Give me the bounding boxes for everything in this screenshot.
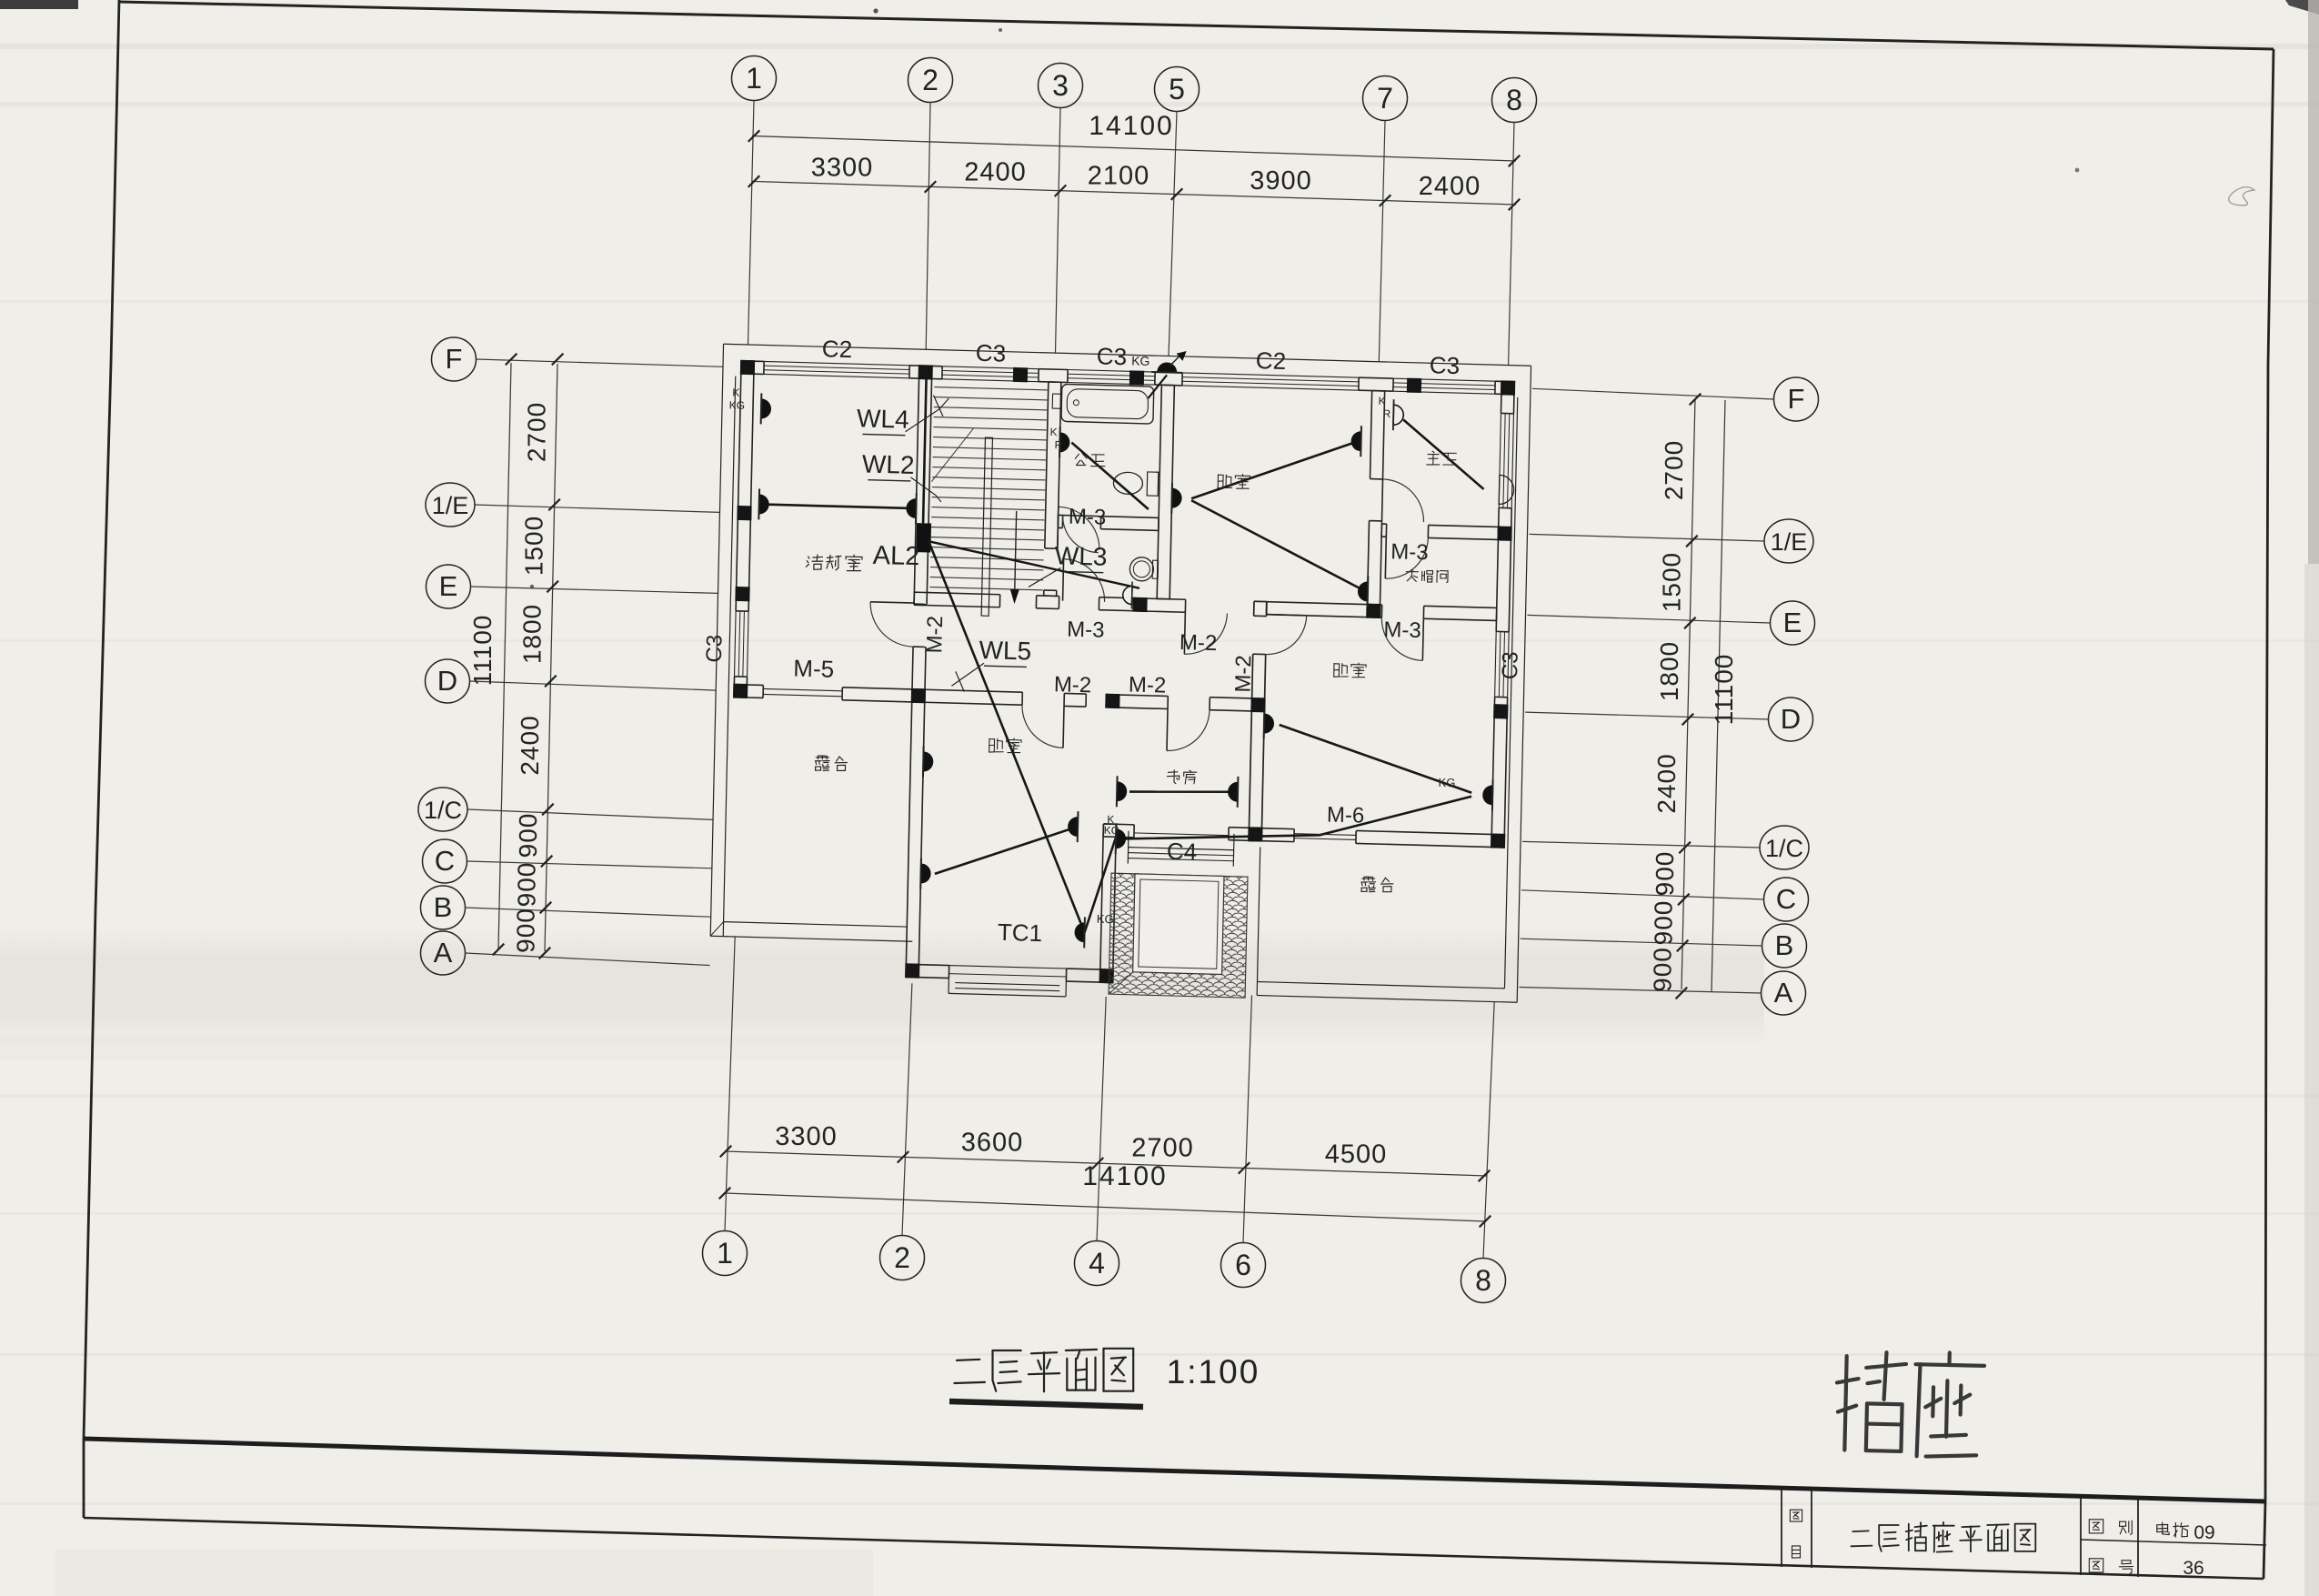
svg-text:8: 8 [1475, 1264, 1491, 1297]
svg-text:A: A [1774, 977, 1793, 1009]
svg-text:M-2: M-2 [1129, 673, 1167, 698]
svg-text:4500: 4500 [1325, 1139, 1388, 1169]
svg-text:C3: C3 [702, 635, 728, 663]
svg-text:M-2: M-2 [1230, 655, 1256, 693]
svg-text:900: 900 [1649, 947, 1677, 992]
svg-text:R: R [1382, 407, 1390, 420]
svg-text:C: C [435, 845, 455, 877]
svg-text:M-5: M-5 [793, 655, 834, 683]
svg-text:M-2: M-2 [1054, 672, 1092, 698]
svg-text:D: D [1781, 703, 1801, 735]
svg-text:1500: 1500 [520, 516, 548, 576]
svg-text:2400: 2400 [516, 715, 544, 775]
svg-text:A: A [434, 937, 453, 969]
svg-text:KG: KG [729, 398, 746, 411]
svg-text:14100: 14100 [1082, 1161, 1167, 1191]
svg-text:C3: C3 [976, 339, 1007, 367]
svg-text:4: 4 [1089, 1247, 1105, 1280]
svg-text:C2: C2 [822, 335, 853, 363]
svg-text:WL3: WL3 [1055, 541, 1108, 571]
svg-text:1500: 1500 [1657, 552, 1685, 612]
svg-text:3: 3 [1052, 69, 1069, 102]
svg-text:11100: 11100 [1710, 654, 1738, 726]
svg-text:K: K [1049, 426, 1057, 438]
svg-text:900: 900 [1651, 851, 1679, 897]
svg-text:11100: 11100 [468, 615, 497, 687]
svg-text:1/E: 1/E [1771, 528, 1808, 556]
svg-text:WL2: WL2 [862, 449, 915, 479]
svg-text:900: 900 [513, 862, 541, 908]
svg-text:WL5: WL5 [979, 636, 1031, 666]
svg-text:2700: 2700 [1660, 440, 1688, 500]
svg-text:8: 8 [1506, 84, 1522, 116]
svg-text:36: 36 [2183, 1558, 2204, 1579]
svg-text:C: C [1776, 883, 1796, 915]
svg-text:R: R [1055, 438, 1063, 451]
svg-text:1: 1 [717, 1237, 733, 1270]
svg-text:M-2: M-2 [1180, 630, 1218, 656]
svg-text:KG: KG [1097, 912, 1114, 927]
svg-text:C3: C3 [1097, 342, 1128, 370]
svg-text:B: B [434, 891, 453, 923]
svg-text:C4: C4 [1167, 838, 1198, 866]
svg-text:TC1: TC1 [998, 918, 1043, 947]
svg-text:B: B [1775, 929, 1794, 961]
svg-text:2400: 2400 [1419, 172, 1481, 201]
svg-text:2700: 2700 [522, 402, 550, 462]
svg-text:1/C: 1/C [1765, 835, 1803, 862]
svg-text:7: 7 [1377, 82, 1393, 115]
svg-text:M-2: M-2 [922, 616, 948, 654]
svg-text:F: F [446, 343, 463, 375]
svg-text:M-3: M-3 [1069, 505, 1107, 530]
svg-text:M-6: M-6 [1327, 802, 1365, 828]
svg-text:6: 6 [1235, 1249, 1251, 1281]
svg-text:E: E [1783, 607, 1802, 638]
svg-text:900: 900 [514, 813, 542, 858]
svg-text:2: 2 [894, 1241, 910, 1274]
svg-text:1800: 1800 [518, 604, 547, 664]
svg-text:3600: 3600 [961, 1129, 1024, 1158]
svg-text:1:100: 1:100 [1167, 1353, 1260, 1390]
svg-text:2400: 2400 [964, 158, 1027, 187]
svg-text:C3: C3 [1430, 351, 1461, 379]
svg-text:2700: 2700 [1131, 1134, 1194, 1163]
svg-text:KG: KG [1438, 776, 1455, 790]
svg-text:M-3: M-3 [1390, 539, 1429, 565]
svg-text:900: 900 [512, 908, 540, 953]
svg-text:M-3: M-3 [1067, 617, 1105, 643]
svg-text:1800: 1800 [1655, 641, 1683, 701]
svg-text:C2: C2 [1256, 346, 1287, 375]
svg-text:900: 900 [1650, 900, 1678, 946]
svg-text:D: D [437, 665, 457, 697]
svg-text:3300: 3300 [775, 1122, 838, 1151]
svg-text:3300: 3300 [811, 153, 874, 182]
svg-text:K: K [732, 386, 739, 399]
svg-text:KG: KG [1104, 824, 1120, 837]
svg-text:5: 5 [1169, 73, 1185, 105]
svg-text:M-3: M-3 [1383, 617, 1421, 643]
svg-text:C3: C3 [1498, 651, 1523, 679]
svg-text:AL2: AL2 [872, 541, 919, 571]
svg-text:E: E [439, 570, 458, 602]
svg-text:14100: 14100 [1089, 111, 1173, 141]
svg-text:1: 1 [746, 62, 762, 95]
svg-text:WL4: WL4 [857, 404, 909, 434]
svg-text:1/C: 1/C [424, 797, 462, 824]
svg-text:K: K [1378, 395, 1385, 407]
svg-text:3900: 3900 [1250, 166, 1312, 196]
svg-text:2100: 2100 [1088, 162, 1150, 191]
svg-text:F: F [1788, 383, 1805, 415]
svg-text:KG: KG [1131, 353, 1150, 368]
svg-text:1/E: 1/E [432, 492, 469, 519]
svg-text:2: 2 [922, 64, 939, 96]
svg-text:09: 09 [2194, 1522, 2214, 1543]
svg-text:2400: 2400 [1652, 753, 1681, 813]
